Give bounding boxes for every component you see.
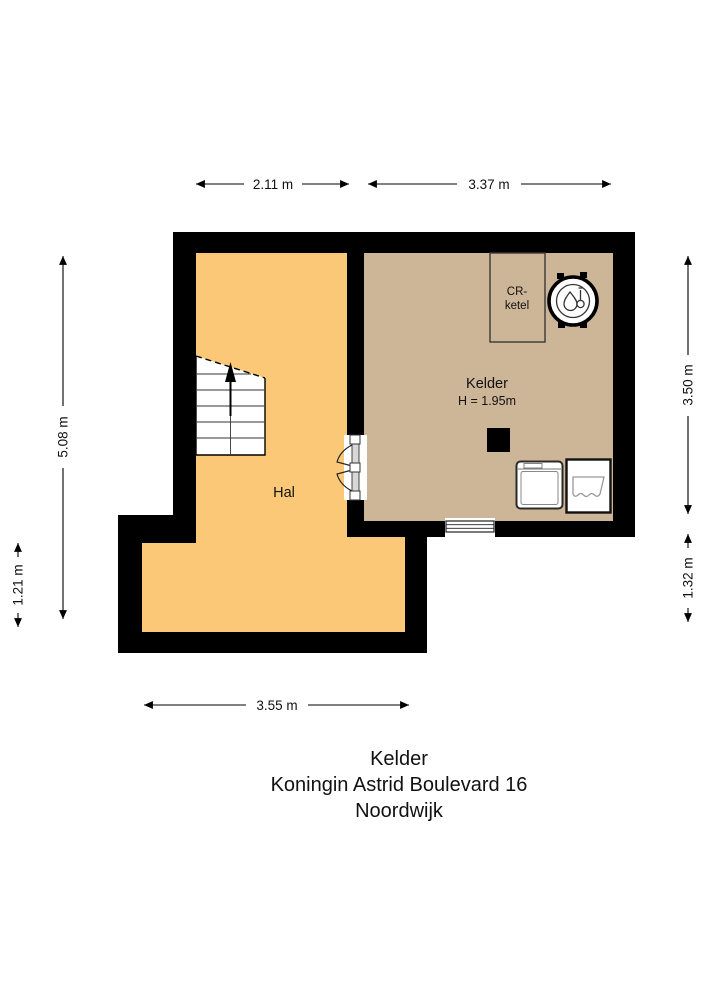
- title-block: Kelder Koningin Astrid Boulevard 16 Noor…: [271, 748, 528, 822]
- floor-plan-page: 2.11 m 3.37 m 5.08 m 1.21 m 3.50 m 1.32 …: [0, 0, 707, 1000]
- title-floor: Kelder: [370, 748, 428, 770]
- cr-ketel-label-line2: ketel: [505, 300, 529, 312]
- dimension-bottom-hal-label: 3.55 m: [256, 698, 297, 713]
- dimension-left-extension-label: 1.21 m: [11, 564, 26, 605]
- title-city: Noordwijk: [355, 800, 444, 822]
- dimension-top-hal-label: 2.11 m: [253, 177, 293, 192]
- cr-ketel-box: CR- ketel: [490, 253, 545, 342]
- column: [487, 428, 510, 452]
- cr-ketel-label-line1: CR-: [507, 286, 528, 298]
- sink-icon: [567, 460, 611, 513]
- dimension-right-kelder-label: 3.50 m: [681, 364, 696, 405]
- floor-plan-svg: 2.11 m 3.37 m 5.08 m 1.21 m 3.50 m 1.32 …: [0, 0, 707, 1000]
- kelder-ceiling-height-label: H = 1.95m: [458, 394, 516, 408]
- washing-machine-icon: [517, 462, 563, 509]
- hal-room-label: Hal: [273, 485, 295, 501]
- dimension-right-lower-label: 1.32 m: [681, 557, 696, 598]
- kelder-room-label: Kelder: [466, 376, 508, 392]
- dimension-left-total-label: 5.08 m: [56, 416, 71, 457]
- title-address: Koningin Astrid Boulevard 16: [271, 774, 528, 796]
- dimension-top-kelder-label: 3.37 m: [468, 177, 509, 192]
- window: [445, 518, 495, 539]
